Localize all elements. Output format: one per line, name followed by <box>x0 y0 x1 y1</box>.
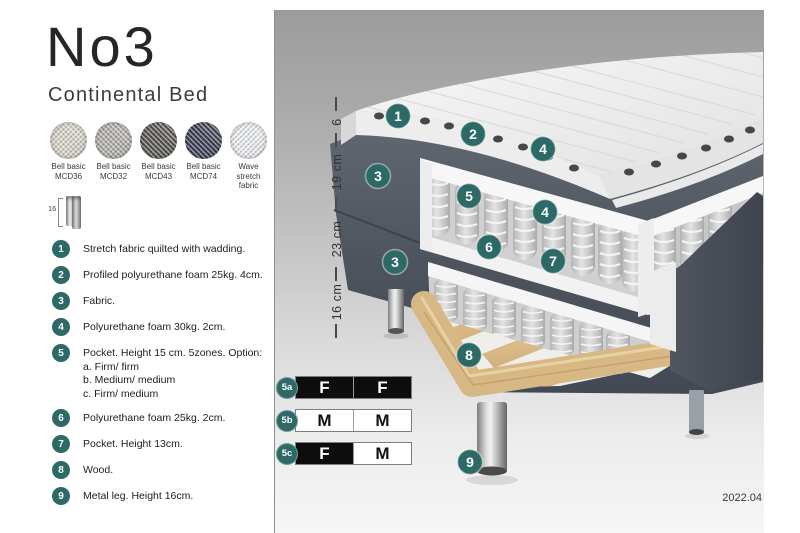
page-title: No3 <box>46 14 158 79</box>
spec-row-5b: 5b M M <box>276 409 412 432</box>
spec-cell: M <box>354 410 411 431</box>
svg-text:2: 2 <box>469 126 477 142</box>
callout-9: 9 <box>458 450 483 475</box>
spec-badge: 5a <box>276 377 298 399</box>
spec-table: F M <box>295 442 412 465</box>
fabric-swatch: Bell basicMCD43 <box>136 122 181 191</box>
legend-item-8: 8 Wood. <box>52 461 267 479</box>
fabric-swatch: Bell basicMCD36 <box>46 122 91 191</box>
dimension-label: 6 <box>330 118 344 125</box>
spec-badge: 5b <box>276 410 298 432</box>
legend-item-6: 6 Polyurethane foam 25kg. 2cm. <box>52 409 267 427</box>
legend-list: 1 Stretch fabric quilted with wadding. 2… <box>52 240 267 513</box>
callout-8: 8 <box>457 343 482 368</box>
spec-badge: 5c <box>276 443 298 465</box>
spec-cell: F <box>296 377 353 398</box>
legend-number-badge: 7 <box>52 435 70 453</box>
legend-number-badge: 3 <box>52 292 70 310</box>
legend-item-7: 7 Pocket. Height 13cm. <box>52 435 267 453</box>
fabric-swatch-circle <box>185 122 222 159</box>
spec-cell: M <box>354 443 411 464</box>
svg-text:3: 3 <box>374 168 382 184</box>
info-panel: No3 Continental Bed Bell basicMCD36 Bell… <box>0 0 274 533</box>
callout-6: 6 <box>477 235 502 260</box>
fabric-swatch-circle <box>230 122 267 159</box>
legend-number-badge: 2 <box>52 266 70 284</box>
leg-shadow <box>466 475 518 485</box>
pocket-options: a. Firm/ firm b. Medium/ medium c. Firm/… <box>83 361 270 402</box>
legend-item-3: 3 Fabric. <box>52 292 267 310</box>
callout-7: 7 <box>541 249 566 274</box>
leg-thumbnail: 16 <box>48 194 81 229</box>
legend-number-badge: 5 <box>52 344 70 362</box>
metal-leg <box>388 289 404 331</box>
callout-2: 2 <box>461 122 486 147</box>
fabric-swatch-circle <box>50 122 87 159</box>
svg-text:4: 4 <box>541 204 549 220</box>
fabric-swatch: Bell basicMCD32 <box>91 122 136 191</box>
spec-row-5a: 5a F F <box>276 376 412 399</box>
legend-number-badge: 9 <box>52 487 70 505</box>
svg-text:4: 4 <box>539 141 547 157</box>
dimension-label: 19 cm <box>330 154 344 191</box>
version-stamp: 2022.04 <box>702 492 762 504</box>
legend-number-badge: 6 <box>52 409 70 427</box>
fabric-swatch-circle <box>95 122 132 159</box>
spec-cell: F <box>354 377 411 398</box>
svg-text:5: 5 <box>465 188 473 204</box>
legend-item-1: 1 Stretch fabric quilted with wadding. <box>52 240 267 258</box>
spec-table: M M <box>295 409 412 432</box>
legend-number-badge: 1 <box>52 240 70 258</box>
metal-leg <box>689 390 704 432</box>
legend-number-badge: 4 <box>52 318 70 336</box>
callout-3b: 3 <box>383 250 408 275</box>
leg-foot <box>388 328 404 334</box>
callout-3a: 3 <box>366 164 391 189</box>
foam-side-rail <box>420 160 432 252</box>
dimension-label: 16 cm <box>330 284 344 321</box>
svg-text:6: 6 <box>485 239 493 255</box>
legend-item-2: 2 Profiled polyurethane foam 25kg. 4cm. <box>52 266 267 284</box>
spec-table: F F <box>295 376 412 399</box>
callout-1: 1 <box>386 104 411 129</box>
fabric-swatch: Wavestretch fabric <box>226 122 271 191</box>
svg-text:1: 1 <box>394 108 402 124</box>
legend-item-4: 4 Polyurethane foam 30kg. 2cm. <box>52 318 267 336</box>
fabric-swatches: Bell basicMCD36 Bell basicMCD32 Bell bas… <box>46 122 271 191</box>
svg-text:9: 9 <box>466 454 474 470</box>
callout-5: 5 <box>457 184 482 209</box>
legend-item-9: 9 Metal leg. Height 16cm. <box>52 487 267 505</box>
spec-cell: M <box>296 410 353 431</box>
svg-text:8: 8 <box>465 347 473 363</box>
svg-text:7: 7 <box>549 253 557 269</box>
dimension-label: 23 cm <box>330 221 344 258</box>
callout-4b: 4 <box>533 200 558 225</box>
callout-4a: 4 <box>531 137 556 162</box>
leg-foot <box>689 429 704 435</box>
fabric-swatch: Bell basicMCD74 <box>181 122 226 191</box>
spec-sheet: No3 Continental Bed Bell basicMCD36 Bell… <box>0 0 800 533</box>
foam-corner-post <box>650 262 676 352</box>
fabric-swatch-circle <box>140 122 177 159</box>
legend-number-badge: 8 <box>52 461 70 479</box>
leg-height-label: 16 <box>48 204 56 213</box>
spec-row-5c: 5c F M <box>276 442 412 465</box>
spec-cell: F <box>296 443 353 464</box>
metal-leg-icon <box>72 196 81 229</box>
leg-dimension-line <box>58 198 63 227</box>
page-subtitle: Continental Bed <box>48 84 208 107</box>
svg-text:3: 3 <box>391 254 399 270</box>
legend-item-5: 5 Pocket. Height 15 cm. 5zones. Option: … <box>52 344 267 401</box>
